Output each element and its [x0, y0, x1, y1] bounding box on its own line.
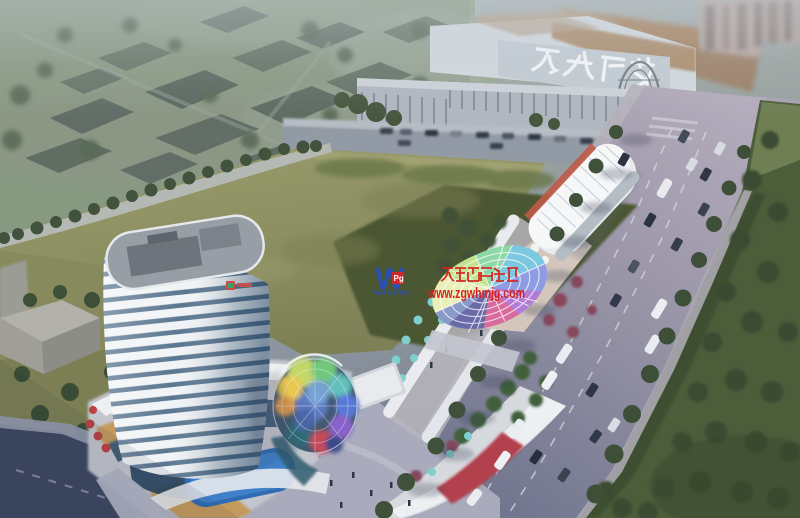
svg-text:Pg: Pg	[394, 274, 404, 283]
svg-text:www.zgwhmjg.com: www.zgwhmjg.com	[427, 286, 525, 302]
svg-text:WANHAO: WANHAO	[374, 290, 411, 297]
